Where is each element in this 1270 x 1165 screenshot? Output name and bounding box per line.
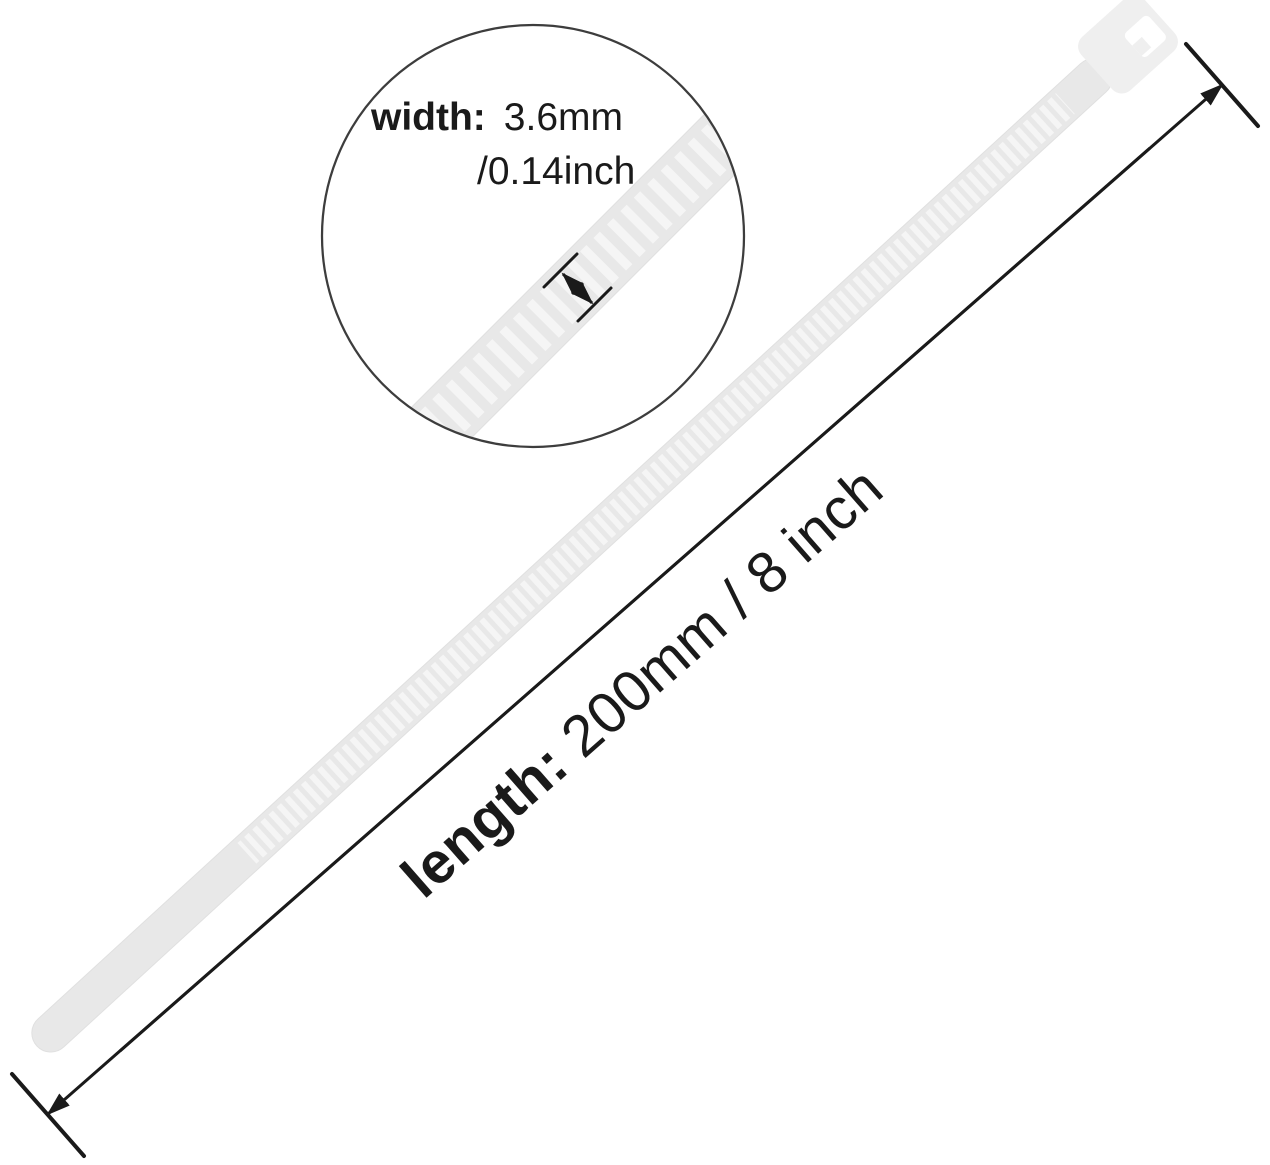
zoom-circle-background <box>322 25 744 447</box>
length-label-value: 200mm / 8 inch <box>549 455 895 770</box>
length-label: length:200mm / 8 inch <box>389 455 895 911</box>
length-label-key: length: <box>389 731 580 910</box>
zoom-circle-callout: width:3.6mm /0.14inch <box>286 25 798 578</box>
dimension-tick-start <box>12 1074 84 1156</box>
width-value-imperial: /0.14inch <box>477 150 635 193</box>
width-value-metric: 3.6mm <box>504 96 623 139</box>
dimension-tick-end <box>1186 44 1258 126</box>
width-label-key: width: <box>370 96 486 139</box>
product-dimension-diagram: length:200mm / 8 inch width:3. <box>0 0 1270 1165</box>
